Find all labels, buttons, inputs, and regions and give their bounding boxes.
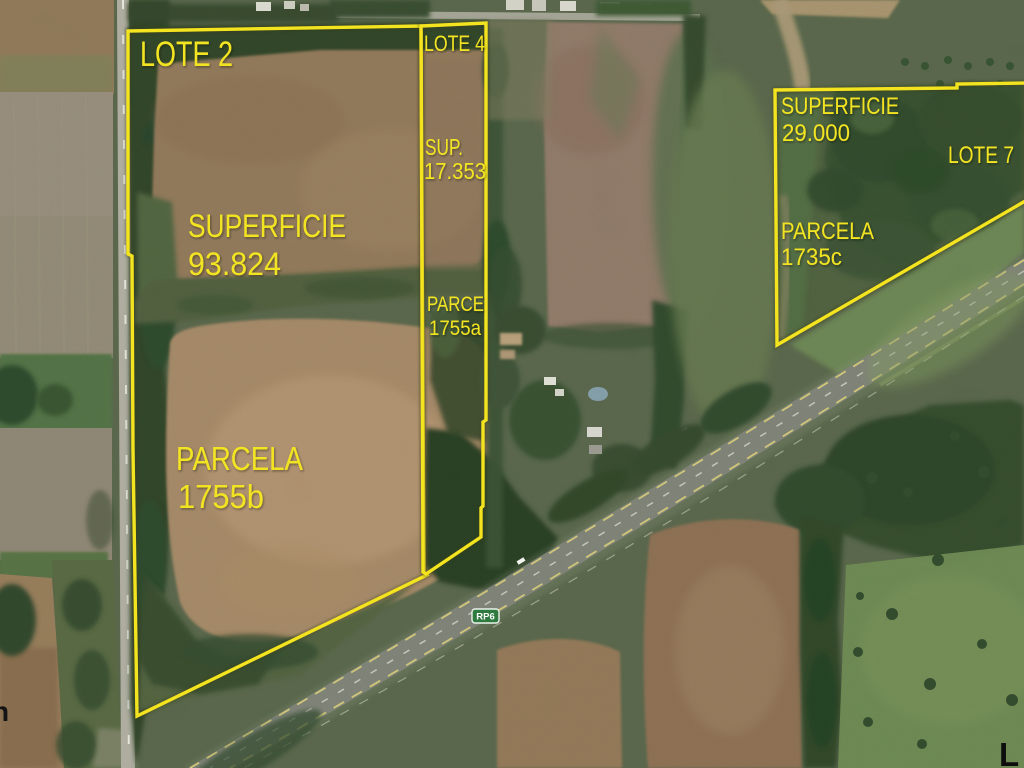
svg-text:L: L [999, 736, 1019, 768]
svg-text:LOTE 2: LOTE 2 [140, 35, 233, 74]
svg-text:LOTE 7: LOTE 7 [948, 142, 1014, 169]
svg-text:n: n [0, 696, 9, 727]
svg-text:RP6: RP6 [476, 612, 494, 623]
svg-text:PARCE: PARCE [427, 293, 484, 316]
svg-text:1735c: 1735c [781, 244, 842, 271]
svg-text:1755b: 1755b [178, 478, 264, 515]
svg-text:17.353: 17.353 [424, 158, 486, 184]
svg-text:PARCELA: PARCELA [176, 440, 303, 477]
svg-text:LOTE 4: LOTE 4 [424, 31, 485, 56]
svg-text:29.000: 29.000 [782, 120, 850, 147]
svg-text:1755a: 1755a [429, 317, 481, 340]
svg-text:SUPERFICIE: SUPERFICIE [781, 93, 899, 120]
svg-text:SUP.: SUP. [425, 134, 463, 160]
svg-text:PARCELA: PARCELA [781, 218, 874, 245]
svg-text:93.824: 93.824 [188, 246, 281, 282]
svg-text:SUPERFICIE: SUPERFICIE [188, 208, 346, 244]
